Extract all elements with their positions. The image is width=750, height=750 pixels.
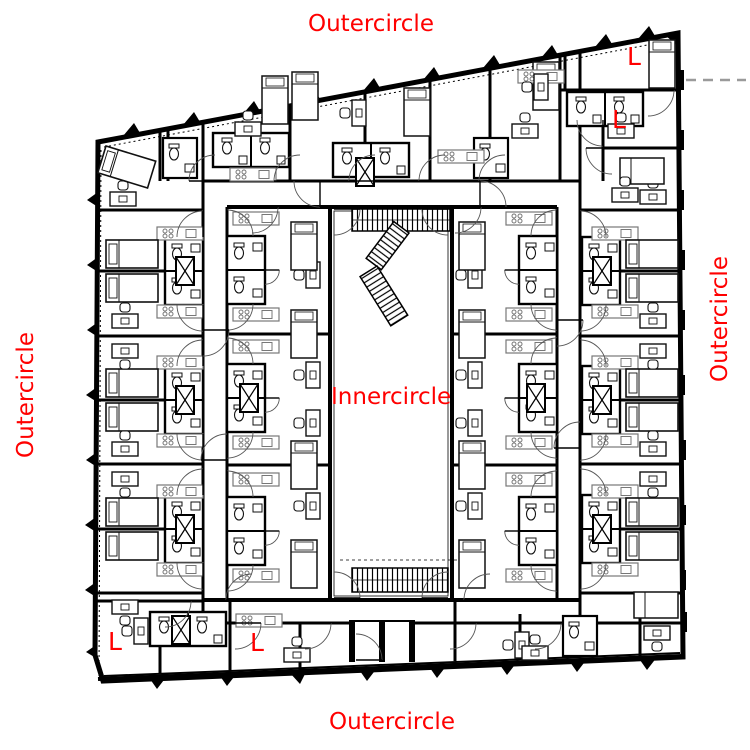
label-l-bottom-left-east: L	[250, 630, 264, 655]
label-innercircle: Innercircle	[331, 385, 451, 410]
label-l-top-right-lower: L	[612, 107, 626, 132]
label-outercircle-bottom: Outercircle	[329, 710, 455, 735]
label-outercircle-right: Outercircle	[708, 254, 733, 382]
label-l-bottom-left-west: L	[108, 629, 122, 654]
label-outercircle-top: Outercircle	[308, 12, 434, 37]
label-l-top-right-upper: L	[627, 44, 641, 69]
label-outercircle-left: Outercircle	[14, 330, 39, 458]
floor-plan-page: Outercircle Outercircle Outercircle Oute…	[0, 0, 750, 750]
